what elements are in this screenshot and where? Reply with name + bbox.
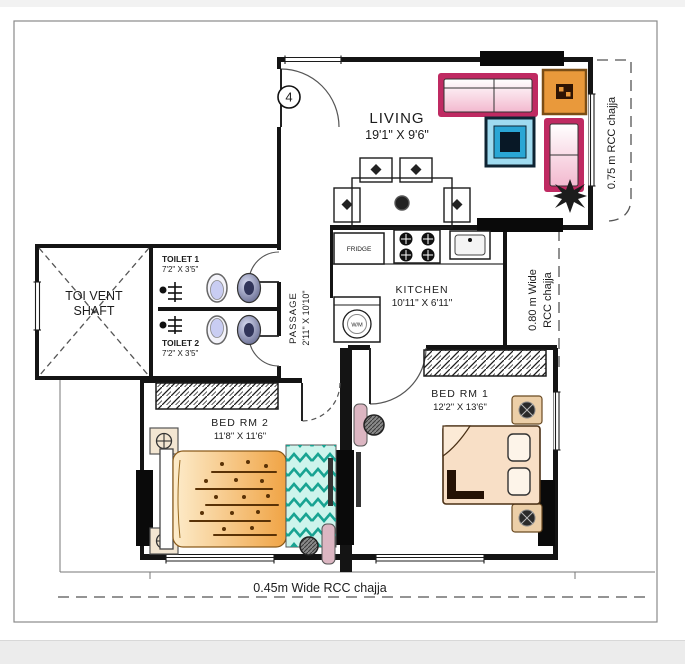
bed-bed2 [160,449,286,549]
bed2-dim: 11'8" X 11'6" [214,431,266,442]
sink-icon [450,231,490,259]
washbasin-2-icon [238,316,261,345]
wall-shaft-right [149,244,153,380]
side-table-bed1-bottom [512,504,542,532]
wall-living-left-stub [277,57,281,69]
sofa-3seat [438,73,538,117]
toilet2-name: TOILET 2 [162,338,199,348]
window-bottom-bed1 [376,555,484,564]
kitchen-dim: 10'11" X 6'11" [392,298,453,309]
passage-name: PASSAGE [288,292,299,344]
column-middle [336,450,354,545]
entrance-marker: 4 [278,86,300,108]
toilet2-dim: 7'2" X 3'5" [162,349,198,358]
bed1-dim: 12'2" X 13'6" [433,402,487,413]
bed1-name: BED RM 1 [431,388,489,400]
wall-kitchen-right [503,230,507,348]
pillow-1 [508,434,530,461]
vent-shaft-label-1: TOI VENT [65,289,123,303]
wall-toilet-top [35,244,281,248]
bed2-name: BED RM 2 [211,417,269,429]
top-strip [0,0,685,7]
floor-plan-drawing: TOI VENT SHAFT TOILET 1 7'2" X 3'5" TOIL… [0,0,685,664]
entrance-marker-number: 4 [285,90,292,105]
bed-bed1 [443,426,540,504]
wc-1-icon [207,274,227,302]
column-living-bottom [477,218,563,232]
center-table [486,118,534,166]
column-living-top [480,51,564,66]
living-dim: 19'1" X 9'6" [365,128,429,142]
chajja-kitchen-label-2: RCC chajja [542,271,554,328]
wall-passage-left-b [277,282,281,336]
wc-2-icon [207,316,227,344]
washing-machine: W/M [334,297,380,342]
side-table-bed1-top [512,396,542,424]
pillow-2 [508,468,530,495]
chajja-bottom-label: 0.45m Wide RCC chajja [253,581,386,595]
sofa-2seat [544,118,584,192]
living-name: LIVING [369,110,424,127]
toilet1-dim: 7'2" X 3'5" [162,265,198,274]
wall-passage-right [330,230,333,298]
stool-bed1 [364,415,384,435]
bottom-strip [0,640,685,664]
corner-table [543,70,586,114]
washbasin-1-icon [238,274,261,303]
wall-toilet-divider [158,307,277,311]
chajja-kitchen-label-1: 0.80 m Wide [527,269,539,331]
passage-dim: 2'11" X 10'10" [301,290,311,345]
wall-toilet-bottom [35,376,281,380]
fridge-label: FRIDGE [347,246,372,253]
wm-label: W/M [351,323,363,329]
wardrobe-bed1 [424,350,546,376]
kitchen-name: KITCHEN [395,284,448,296]
stove-icon [394,230,440,263]
toilet1-name: TOILET 1 [162,254,199,264]
floor-plan-page: TOI VENT SHAFT TOILET 1 7'2" X 3'5" TOIL… [0,0,685,664]
fridge: FRIDGE [334,233,384,264]
window-bottom-bed2 [166,555,274,564]
vent-shaft-label-2: SHAFT [74,304,115,318]
tv-panel-bed1 [356,452,361,507]
wall-living-left [277,127,281,230]
window-shaft-left [34,282,42,330]
tv-panel-bed2 [328,458,333,506]
window-living-right [589,94,596,186]
window-living-topleft [285,56,341,65]
window-bed1-right [554,392,561,450]
wardrobe-bed2 [156,383,278,409]
stool-bed2 [300,537,318,555]
dining-centerpiece [395,196,409,210]
chajja-right-label: 0.75 m RCC chajja [606,96,618,189]
